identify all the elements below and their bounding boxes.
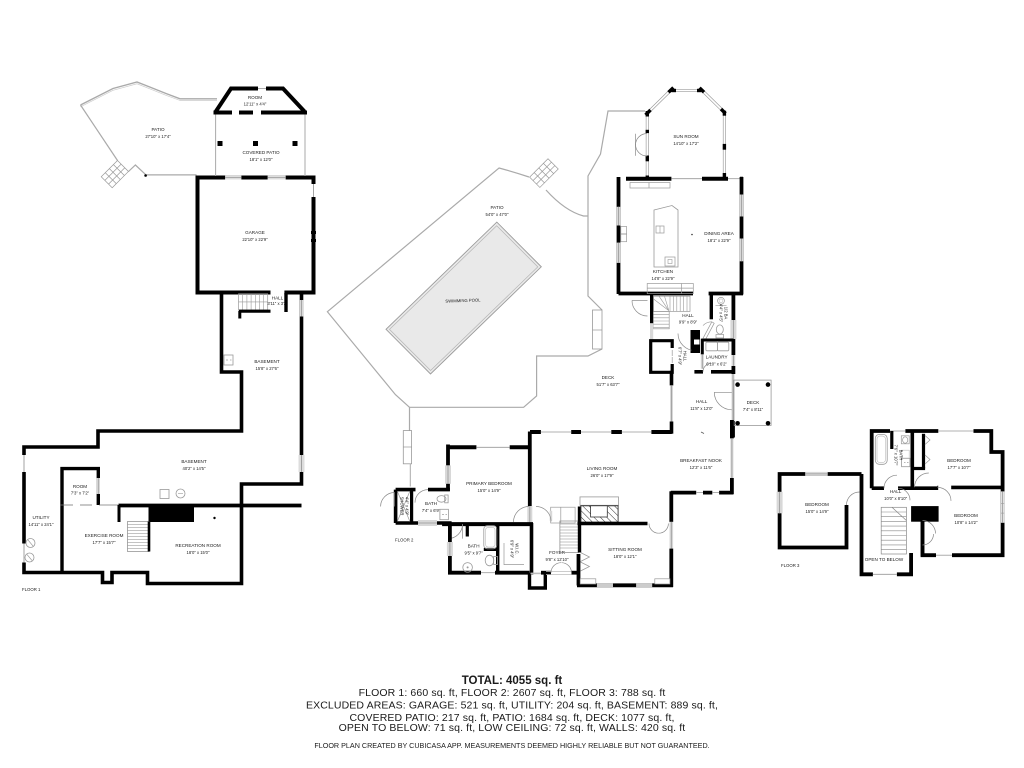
svg-text:10'0" x 8'10": 10'0" x 8'10": [884, 496, 907, 501]
svg-text:18'0" x 15'0": 18'0" x 15'0": [187, 550, 210, 555]
svg-text:PATIO: PATIO: [490, 205, 504, 210]
svg-text:18'0" x 12'1": 18'0" x 12'1": [614, 554, 637, 559]
svg-text:BEDROOM: BEDROOM: [947, 458, 971, 463]
svg-text:RECREATION ROOM: RECREATION ROOM: [175, 543, 221, 548]
svg-text:HALL: HALL: [890, 489, 902, 494]
svg-text:FLOOR 2: FLOOR 2: [395, 538, 414, 543]
svg-text:OPEN TO BELOW: OPEN TO BELOW: [865, 557, 904, 562]
svg-text:EXERCISE ROOM: EXERCISE ROOM: [85, 533, 124, 538]
svg-text:FLOOR 1: FLOOR 1: [22, 587, 41, 592]
svg-text:9'9" x 8'9": 9'9" x 8'9": [679, 320, 698, 325]
svg-text:40'2" x 14'5": 40'2" x 14'5": [183, 466, 206, 471]
svg-text:ROOM: ROOM: [248, 95, 262, 100]
svg-text:14'8" x 22'9": 14'8" x 22'9": [652, 276, 675, 281]
svg-text:17'7" x 15'7": 17'7" x 15'7": [93, 540, 116, 545]
svg-text:26'0" x 17'9": 26'0" x 17'9": [591, 473, 614, 478]
svg-text:17'7" x 10'7": 17'7" x 10'7": [948, 465, 971, 470]
svg-text:UTILITY: UTILITY: [32, 515, 49, 520]
svg-text:7'3" x 7'2": 7'3" x 7'2": [71, 491, 90, 496]
svg-text:6'9" x 4'9": 6'9" x 4'9": [510, 540, 515, 559]
svg-text:BEDROOM: BEDROOM: [805, 502, 829, 507]
svg-text:PRIMARY BEDROOM: PRIMARY BEDROOM: [466, 481, 512, 486]
svg-text:BASEMENT: BASEMENT: [181, 459, 206, 464]
svg-text:6'7" x 4'9": 6'7" x 4'9": [678, 347, 683, 366]
svg-text:HALL: HALL: [696, 399, 708, 404]
svg-text:15'8" x 27'6": 15'8" x 27'6": [256, 366, 279, 371]
svg-text:15'0" x 14'9": 15'0" x 14'9": [478, 488, 501, 493]
svg-text:FLOOR PLAN CREATED BY CUBICASA: FLOOR PLAN CREATED BY CUBICASA APP. MEAS…: [314, 741, 709, 750]
svg-text:DECK: DECK: [747, 400, 761, 405]
svg-text:OPEN TO BELOW: 71 sq. ft, LOW: OPEN TO BELOW: 71 sq. ft, LOW CEILING: 7…: [339, 722, 686, 734]
svg-text:LIVING ROOM: LIVING ROOM: [587, 466, 618, 471]
svg-text:LAUNDRY: LAUNDRY: [706, 355, 728, 360]
svg-text:12'11" x 4'4": 12'11" x 4'4": [244, 102, 267, 107]
svg-text:BATH: BATH: [468, 544, 480, 549]
svg-text:54'0" x 47'0": 54'0" x 47'0": [486, 212, 509, 217]
svg-text:18'1" x 12'0": 18'1" x 12'0": [250, 157, 273, 162]
svg-text:11'8" x 12'0": 11'8" x 12'0": [690, 406, 713, 411]
svg-text:4'4" x 4'5": 4'4" x 4'5": [719, 304, 724, 323]
svg-text:14'10" x 17'2": 14'10" x 17'2": [673, 141, 699, 146]
svg-text:PATIO: PATIO: [151, 127, 165, 132]
svg-text:15'0" x 14'9": 15'0" x 14'9": [806, 509, 829, 514]
svg-text:SUN ROOM: SUN ROOM: [673, 134, 698, 139]
svg-text:FLOOR 1: 660 sq. ft, FLOOR 2:: FLOOR 1: 660 sq. ft, FLOOR 2: 2607 sq. f…: [359, 687, 666, 699]
svg-text:DECK: DECK: [602, 375, 616, 380]
svg-text:BASEMENT: BASEMENT: [254, 359, 279, 364]
svg-text:COVERED PATIO: COVERED PATIO: [242, 150, 280, 155]
svg-text:9'5" x 9'7": 9'5" x 9'7": [464, 551, 483, 556]
svg-text:27'10" x 17'4": 27'10" x 17'4": [145, 134, 171, 139]
svg-text:GARAGE: GARAGE: [245, 230, 265, 235]
svg-text:DINING AREA: DINING AREA: [704, 231, 735, 236]
svg-text:7'6" x 10'7": 7'6" x 10'7": [894, 445, 899, 466]
svg-text:14'11" x 24'1": 14'11" x 24'1": [29, 522, 54, 527]
svg-text:KITCHEN: KITCHEN: [653, 269, 673, 274]
svg-text:51'7" x 63'7": 51'7" x 63'7": [597, 382, 620, 387]
svg-text:6'10" x 6'2": 6'10" x 6'2": [706, 362, 727, 367]
svg-text:7'4" x 8'11": 7'4" x 8'11": [743, 407, 764, 412]
svg-text:12'3" x 11'6": 12'3" x 11'6": [690, 465, 713, 470]
svg-text:HALL: HALL: [682, 313, 694, 318]
svg-text:TOTAL: 4055 sq. ft: TOTAL: 4055 sq. ft: [462, 675, 563, 687]
svg-text:10'8" x 14'2": 10'8" x 14'2": [955, 520, 978, 525]
svg-text:BEDROOM: BEDROOM: [954, 513, 978, 518]
svg-text:7'4" x 6'9": 7'4" x 6'9": [422, 508, 441, 513]
svg-text:9'8" x 12'10": 9'8" x 12'10": [546, 557, 569, 562]
svg-text:EXCLUDED AREAS: GARAGE: 521 sq: EXCLUDED AREAS: GARAGE: 521 sq. ft, UTIL…: [306, 700, 718, 712]
svg-text:ROOM: ROOM: [73, 484, 87, 489]
svg-text:18'1" x 22'9": 18'1" x 22'9": [708, 238, 731, 243]
svg-text:HALL: HALL: [272, 296, 284, 301]
svg-text:BATH: BATH: [425, 501, 437, 506]
svg-text:22'10" x 22'9": 22'10" x 22'9": [242, 237, 268, 242]
svg-text:FLOOR 3: FLOOR 3: [781, 563, 800, 568]
svg-text:SITTING ROOM: SITTING ROOM: [608, 547, 642, 552]
svg-text:BREAKFAST NOOK: BREAKFAST NOOK: [680, 458, 723, 463]
svg-text:SHOWER: SHOWER: [400, 497, 405, 516]
